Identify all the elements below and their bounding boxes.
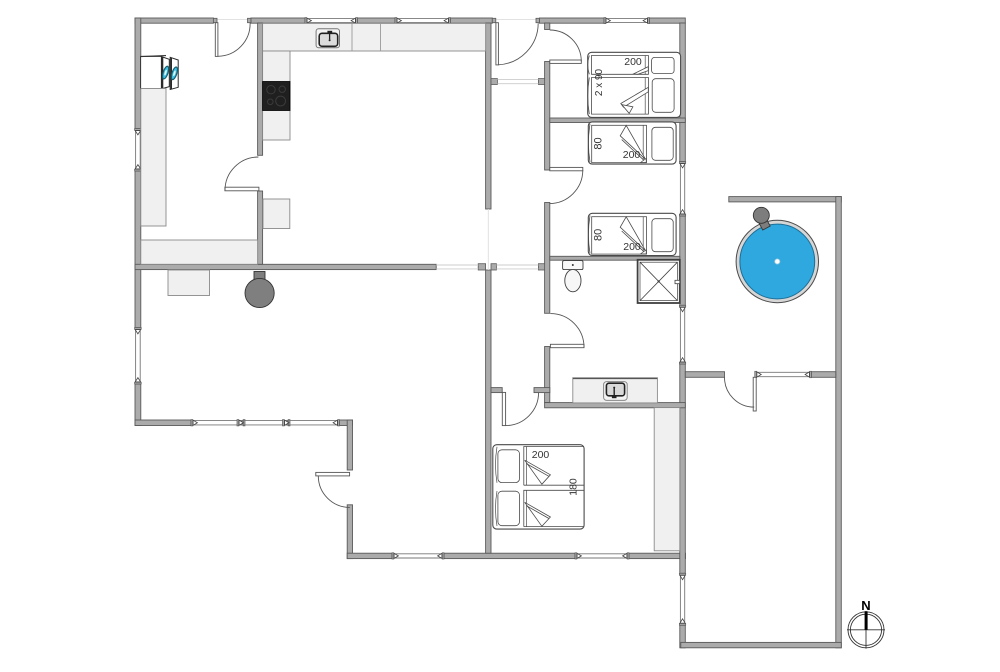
svg-text:200: 200 — [532, 449, 550, 461]
svg-text:N: N — [861, 598, 870, 613]
svg-text:80: 80 — [592, 137, 604, 149]
svg-text:200: 200 — [624, 56, 642, 68]
svg-text:2 x 90: 2 x 90 — [594, 68, 605, 96]
svg-text:80: 80 — [592, 229, 604, 241]
svg-text:180: 180 — [567, 478, 579, 496]
svg-text:200: 200 — [623, 241, 641, 253]
svg-text:200: 200 — [623, 149, 641, 161]
